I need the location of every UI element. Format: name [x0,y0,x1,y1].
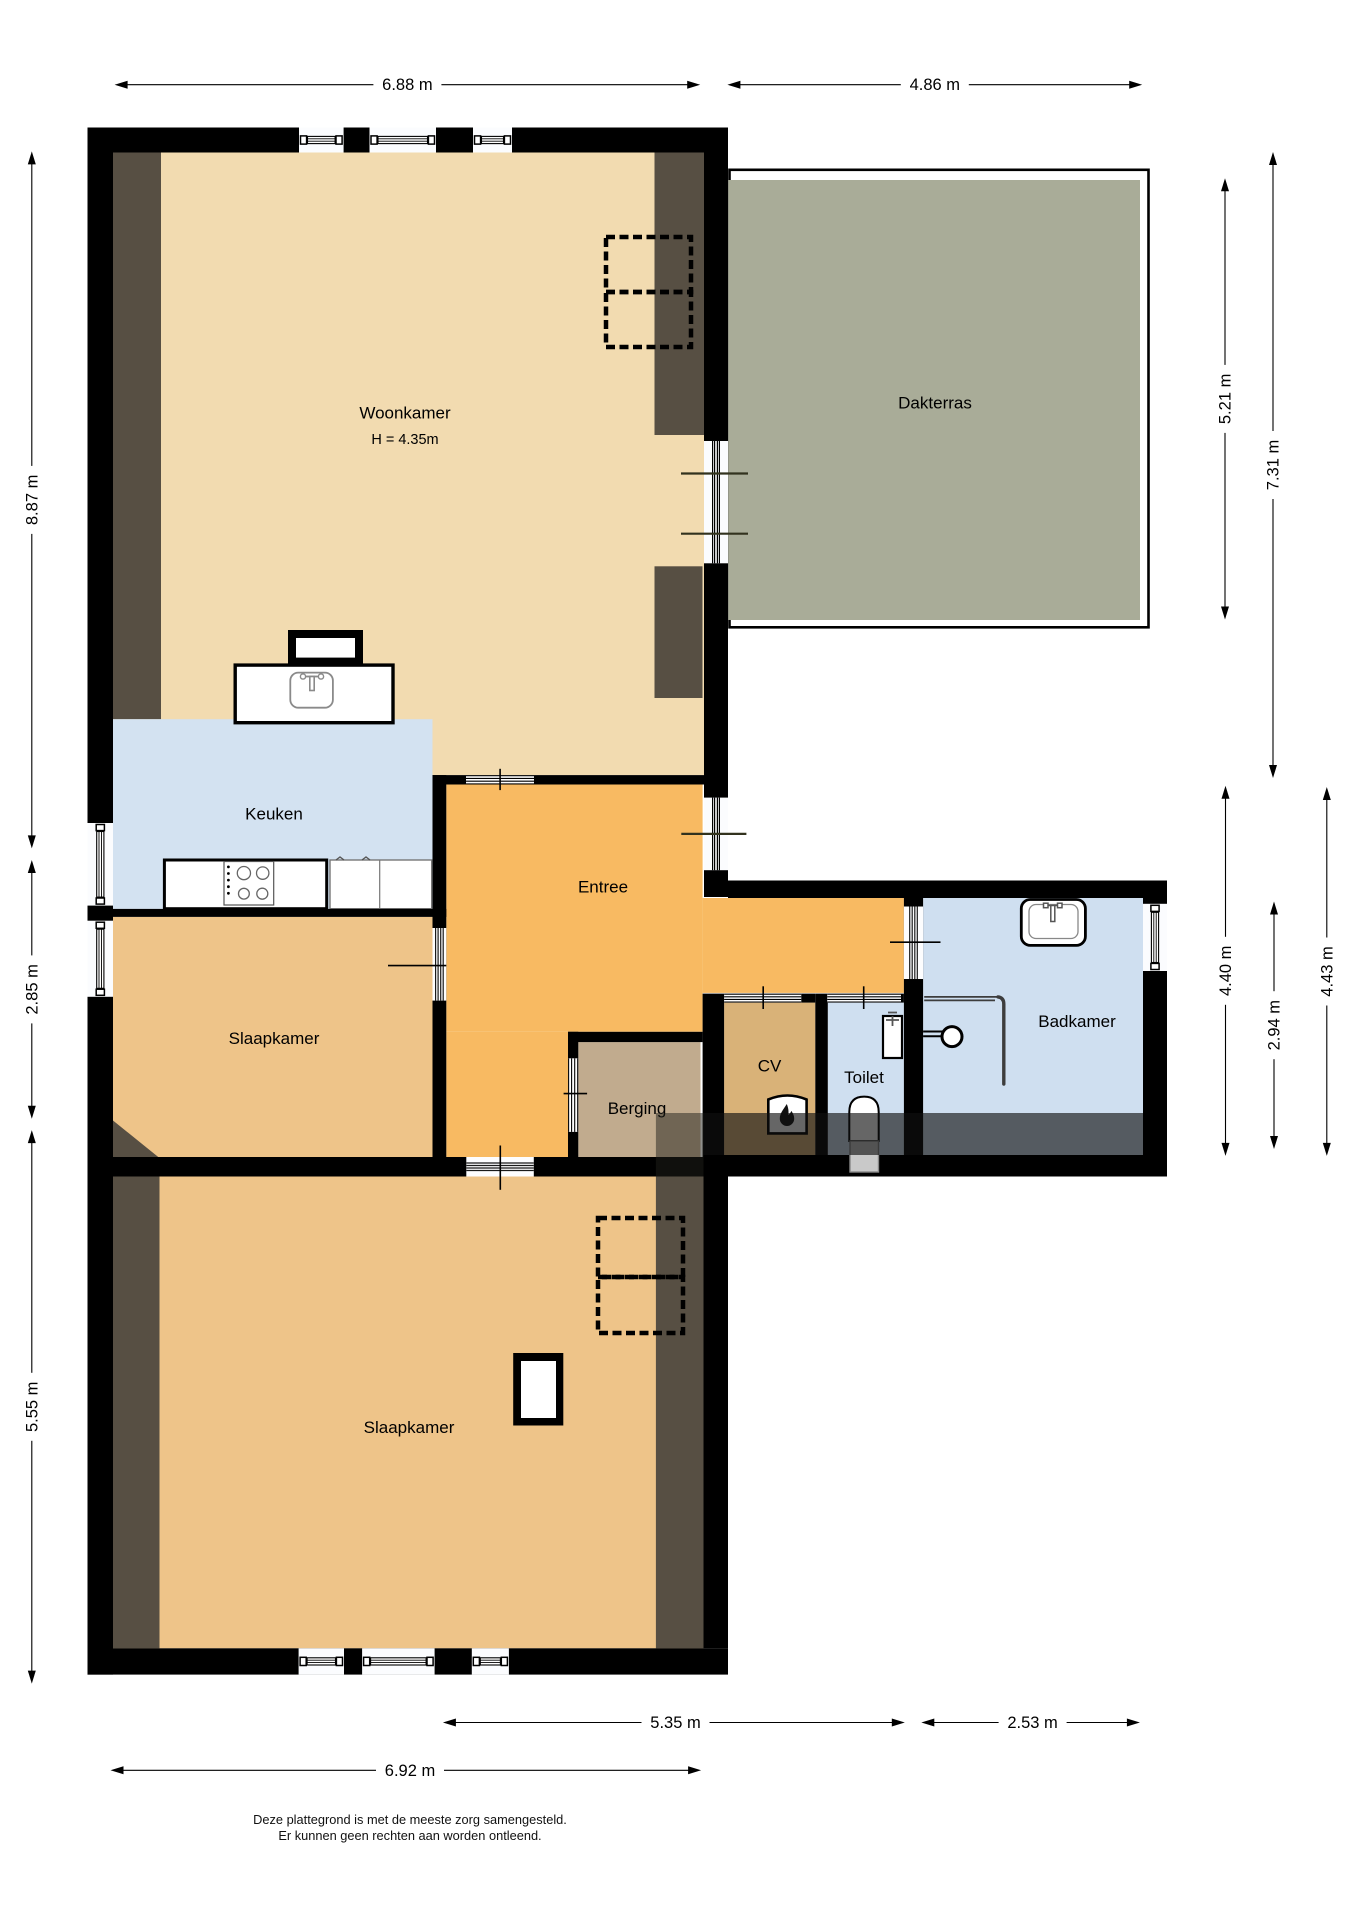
svg-text:5.55 m: 5.55 m [23,1382,41,1432]
svg-text:Badkamer: Badkamer [1038,1012,1116,1031]
svg-text:Slaapkamer: Slaapkamer [229,1029,320,1048]
svg-text:4.43 m: 4.43 m [1318,946,1336,996]
svg-text:Er kunnen geen rechten aan wor: Er kunnen geen rechten aan worden ontlee… [278,1828,541,1843]
svg-text:4.40 m: 4.40 m [1217,946,1235,996]
svg-text:7.31 m: 7.31 m [1265,440,1283,490]
svg-text:2.53 m: 2.53 m [1007,1714,1057,1732]
svg-text:H = 4.35m: H = 4.35m [371,432,438,448]
svg-text:6.92 m: 6.92 m [385,1762,435,1780]
svg-text:Dakterras: Dakterras [898,394,972,413]
svg-text:5.35 m: 5.35 m [650,1714,700,1732]
svg-text:4.86 m: 4.86 m [910,76,960,94]
svg-text:5.21 m: 5.21 m [1217,374,1235,424]
svg-text:Toilet: Toilet [844,1068,884,1087]
svg-text:Woonkamer: Woonkamer [359,404,451,423]
svg-text:2.85 m: 2.85 m [23,964,41,1014]
svg-text:Deze plattegrond is met de mee: Deze plattegrond is met de meeste zorg s… [253,1812,567,1827]
svg-text:8.87 m: 8.87 m [23,475,41,525]
svg-text:Keuken: Keuken [245,805,303,824]
svg-text:Entree: Entree [578,878,628,897]
svg-text:CV: CV [758,1057,782,1076]
svg-text:2.94 m: 2.94 m [1266,1000,1284,1050]
svg-text:6.88 m: 6.88 m [382,76,432,94]
svg-text:Slaapkamer: Slaapkamer [364,1418,455,1437]
